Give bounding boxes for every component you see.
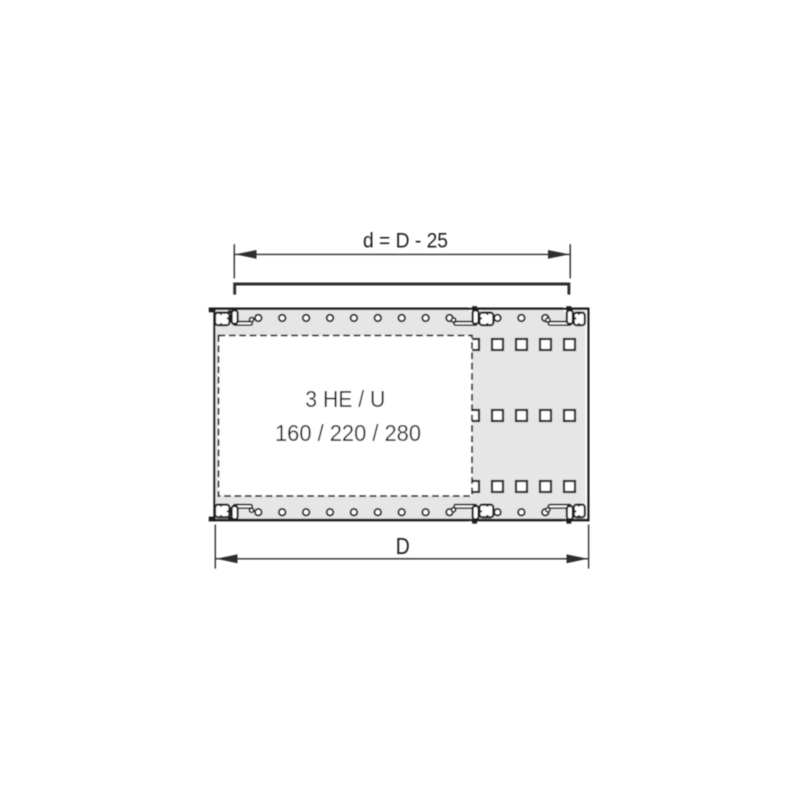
svg-text:3 HE / U: 3 HE / U — [305, 386, 385, 412]
svg-text:160 / 220 / 280: 160 / 220 / 280 — [275, 420, 421, 446]
svg-text:D: D — [396, 533, 410, 559]
svg-text:d = D - 25: d = D - 25 — [363, 230, 448, 253]
